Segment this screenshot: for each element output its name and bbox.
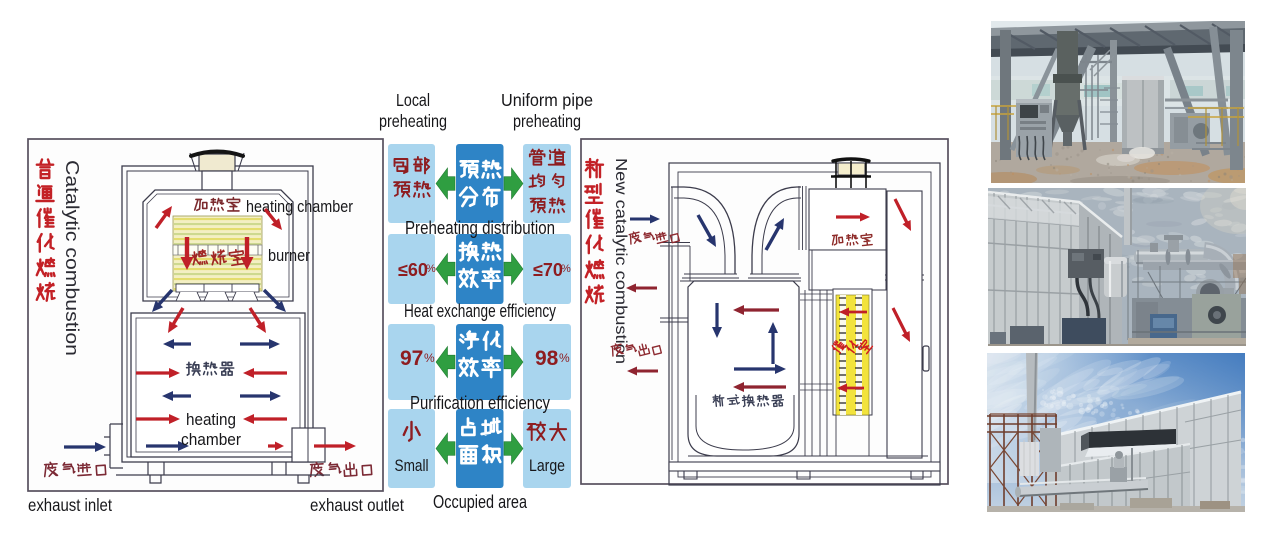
svg-text:Purification efficiency: Purification efficiency (410, 393, 550, 413)
svg-text:Catalytic combustion: Catalytic combustion (62, 160, 82, 356)
svg-text:Uniform pipe: Uniform pipe (501, 90, 593, 110)
svg-text:%: % (424, 351, 435, 365)
svg-text:Preheating distribution: Preheating distribution (405, 218, 555, 238)
svg-text:98: 98 (535, 347, 559, 370)
svg-text:Large: Large (529, 456, 565, 475)
svg-text:New catalytic combustion: New catalytic combustion (612, 158, 629, 364)
svg-text:burner: burner (268, 247, 310, 265)
svg-text:≤60: ≤60 (398, 260, 428, 280)
svg-text:heating: heating (186, 410, 236, 429)
svg-text:97: 97 (400, 347, 423, 370)
svg-text:Occupied area: Occupied area (433, 492, 528, 512)
svg-text:≤70: ≤70 (533, 260, 563, 280)
svg-text:Small: Small (395, 456, 429, 475)
svg-text:exhaust outlet: exhaust outlet (310, 495, 404, 515)
svg-text:Heat exchange efficiency: Heat exchange efficiency (404, 301, 556, 321)
svg-text:%: % (426, 263, 436, 275)
svg-text:preheating: preheating (513, 111, 581, 131)
svg-text:%: % (561, 263, 571, 275)
svg-text:Local: Local (396, 90, 430, 110)
svg-text:heating chamber: heating chamber (246, 198, 353, 216)
svg-text:exhaust inlet: exhaust inlet (28, 495, 112, 515)
svg-text:%: % (559, 351, 570, 365)
svg-text:preheating: preheating (379, 111, 447, 131)
svg-text:chamber: chamber (181, 430, 241, 449)
